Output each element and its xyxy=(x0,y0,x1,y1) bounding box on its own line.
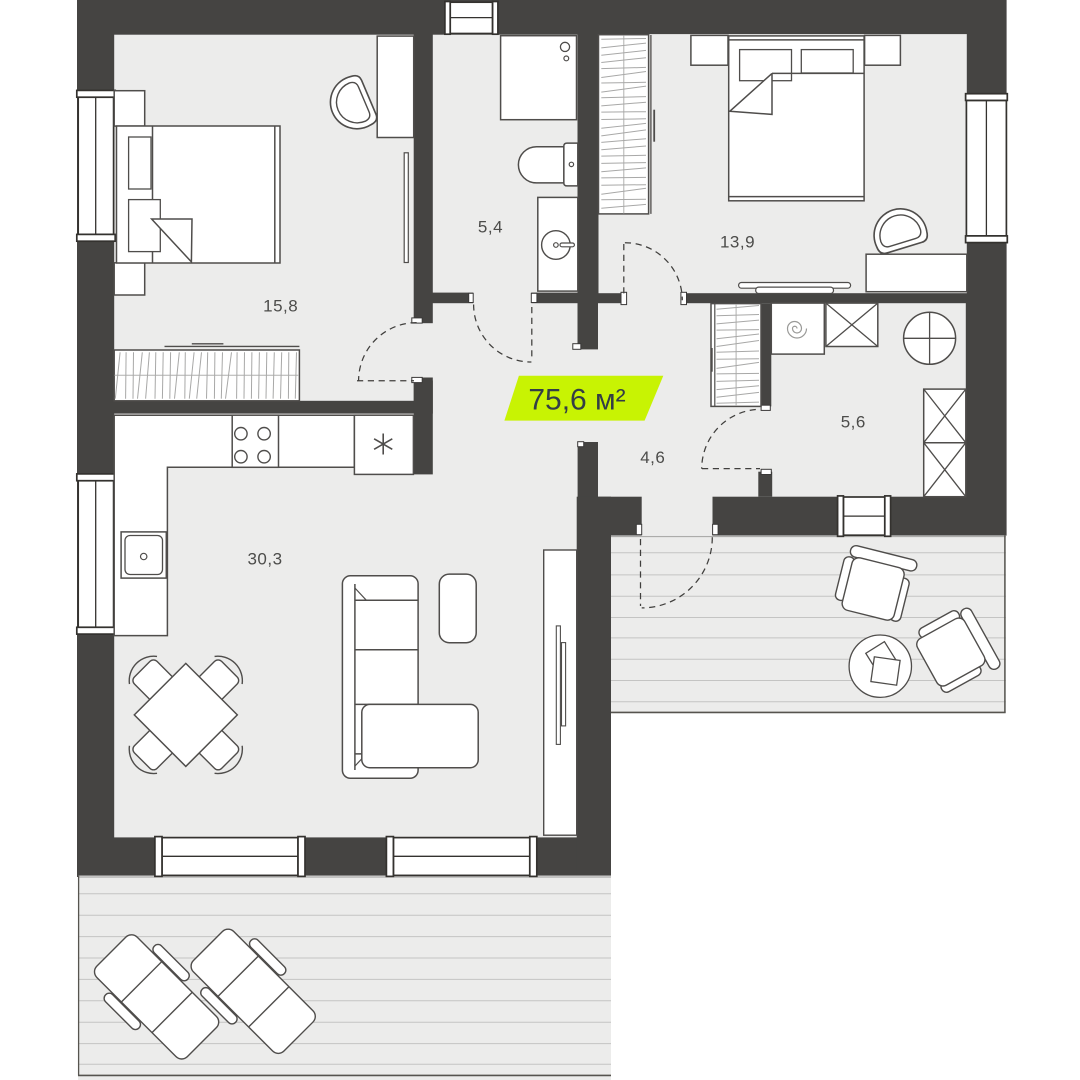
svg-text:5,6: 5,6 xyxy=(841,413,866,432)
svg-text:30,3: 30,3 xyxy=(247,550,282,569)
svg-text:4,6: 4,6 xyxy=(640,448,665,467)
svg-text:15,8: 15,8 xyxy=(263,297,298,316)
svg-text:13,9: 13,9 xyxy=(720,233,755,252)
svg-text:75,6 м²: 75,6 м² xyxy=(528,384,625,417)
svg-text:5,4: 5,4 xyxy=(478,218,503,237)
